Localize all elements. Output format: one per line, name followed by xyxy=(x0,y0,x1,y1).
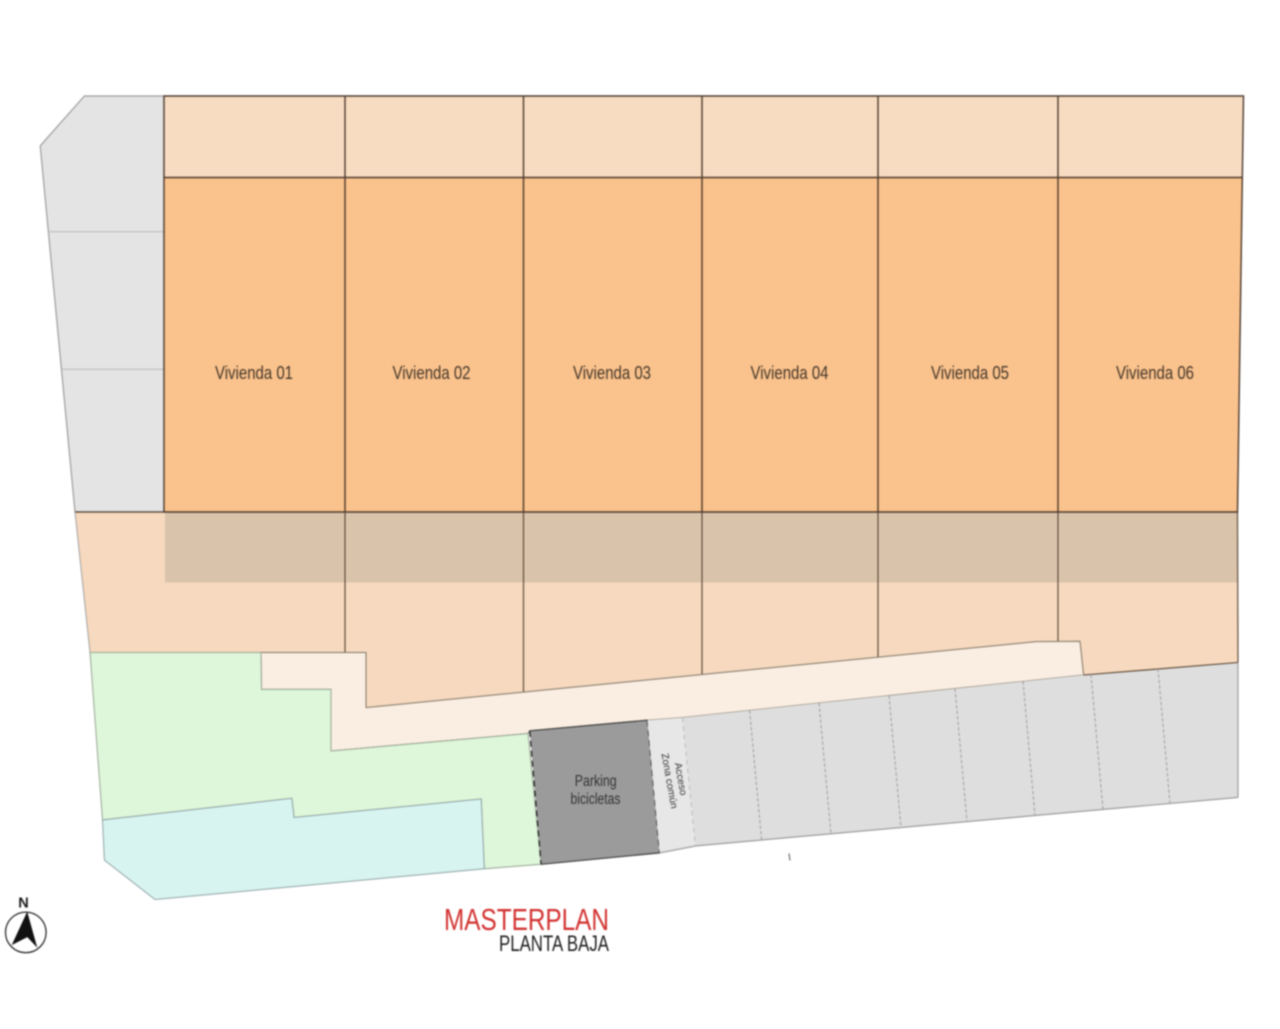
svg-text:Vivienda 05: Vivienda 05 xyxy=(931,363,1009,383)
svg-text:Vivienda 06: Vivienda 06 xyxy=(1116,363,1194,383)
svg-text:Vivienda 03: Vivienda 03 xyxy=(573,363,651,383)
svg-text:PLANTA BAJA: PLANTA BAJA xyxy=(499,931,609,956)
svg-text:Vivienda 04: Vivienda 04 xyxy=(751,363,829,383)
svg-text:Parking: Parking xyxy=(575,773,617,790)
svg-text:bicicletas: bicicletas xyxy=(571,791,621,808)
svg-text:Vivienda 02: Vivienda 02 xyxy=(393,363,471,383)
svg-text:N: N xyxy=(18,895,29,912)
svg-text:Vivienda 01: Vivienda 01 xyxy=(215,363,293,383)
